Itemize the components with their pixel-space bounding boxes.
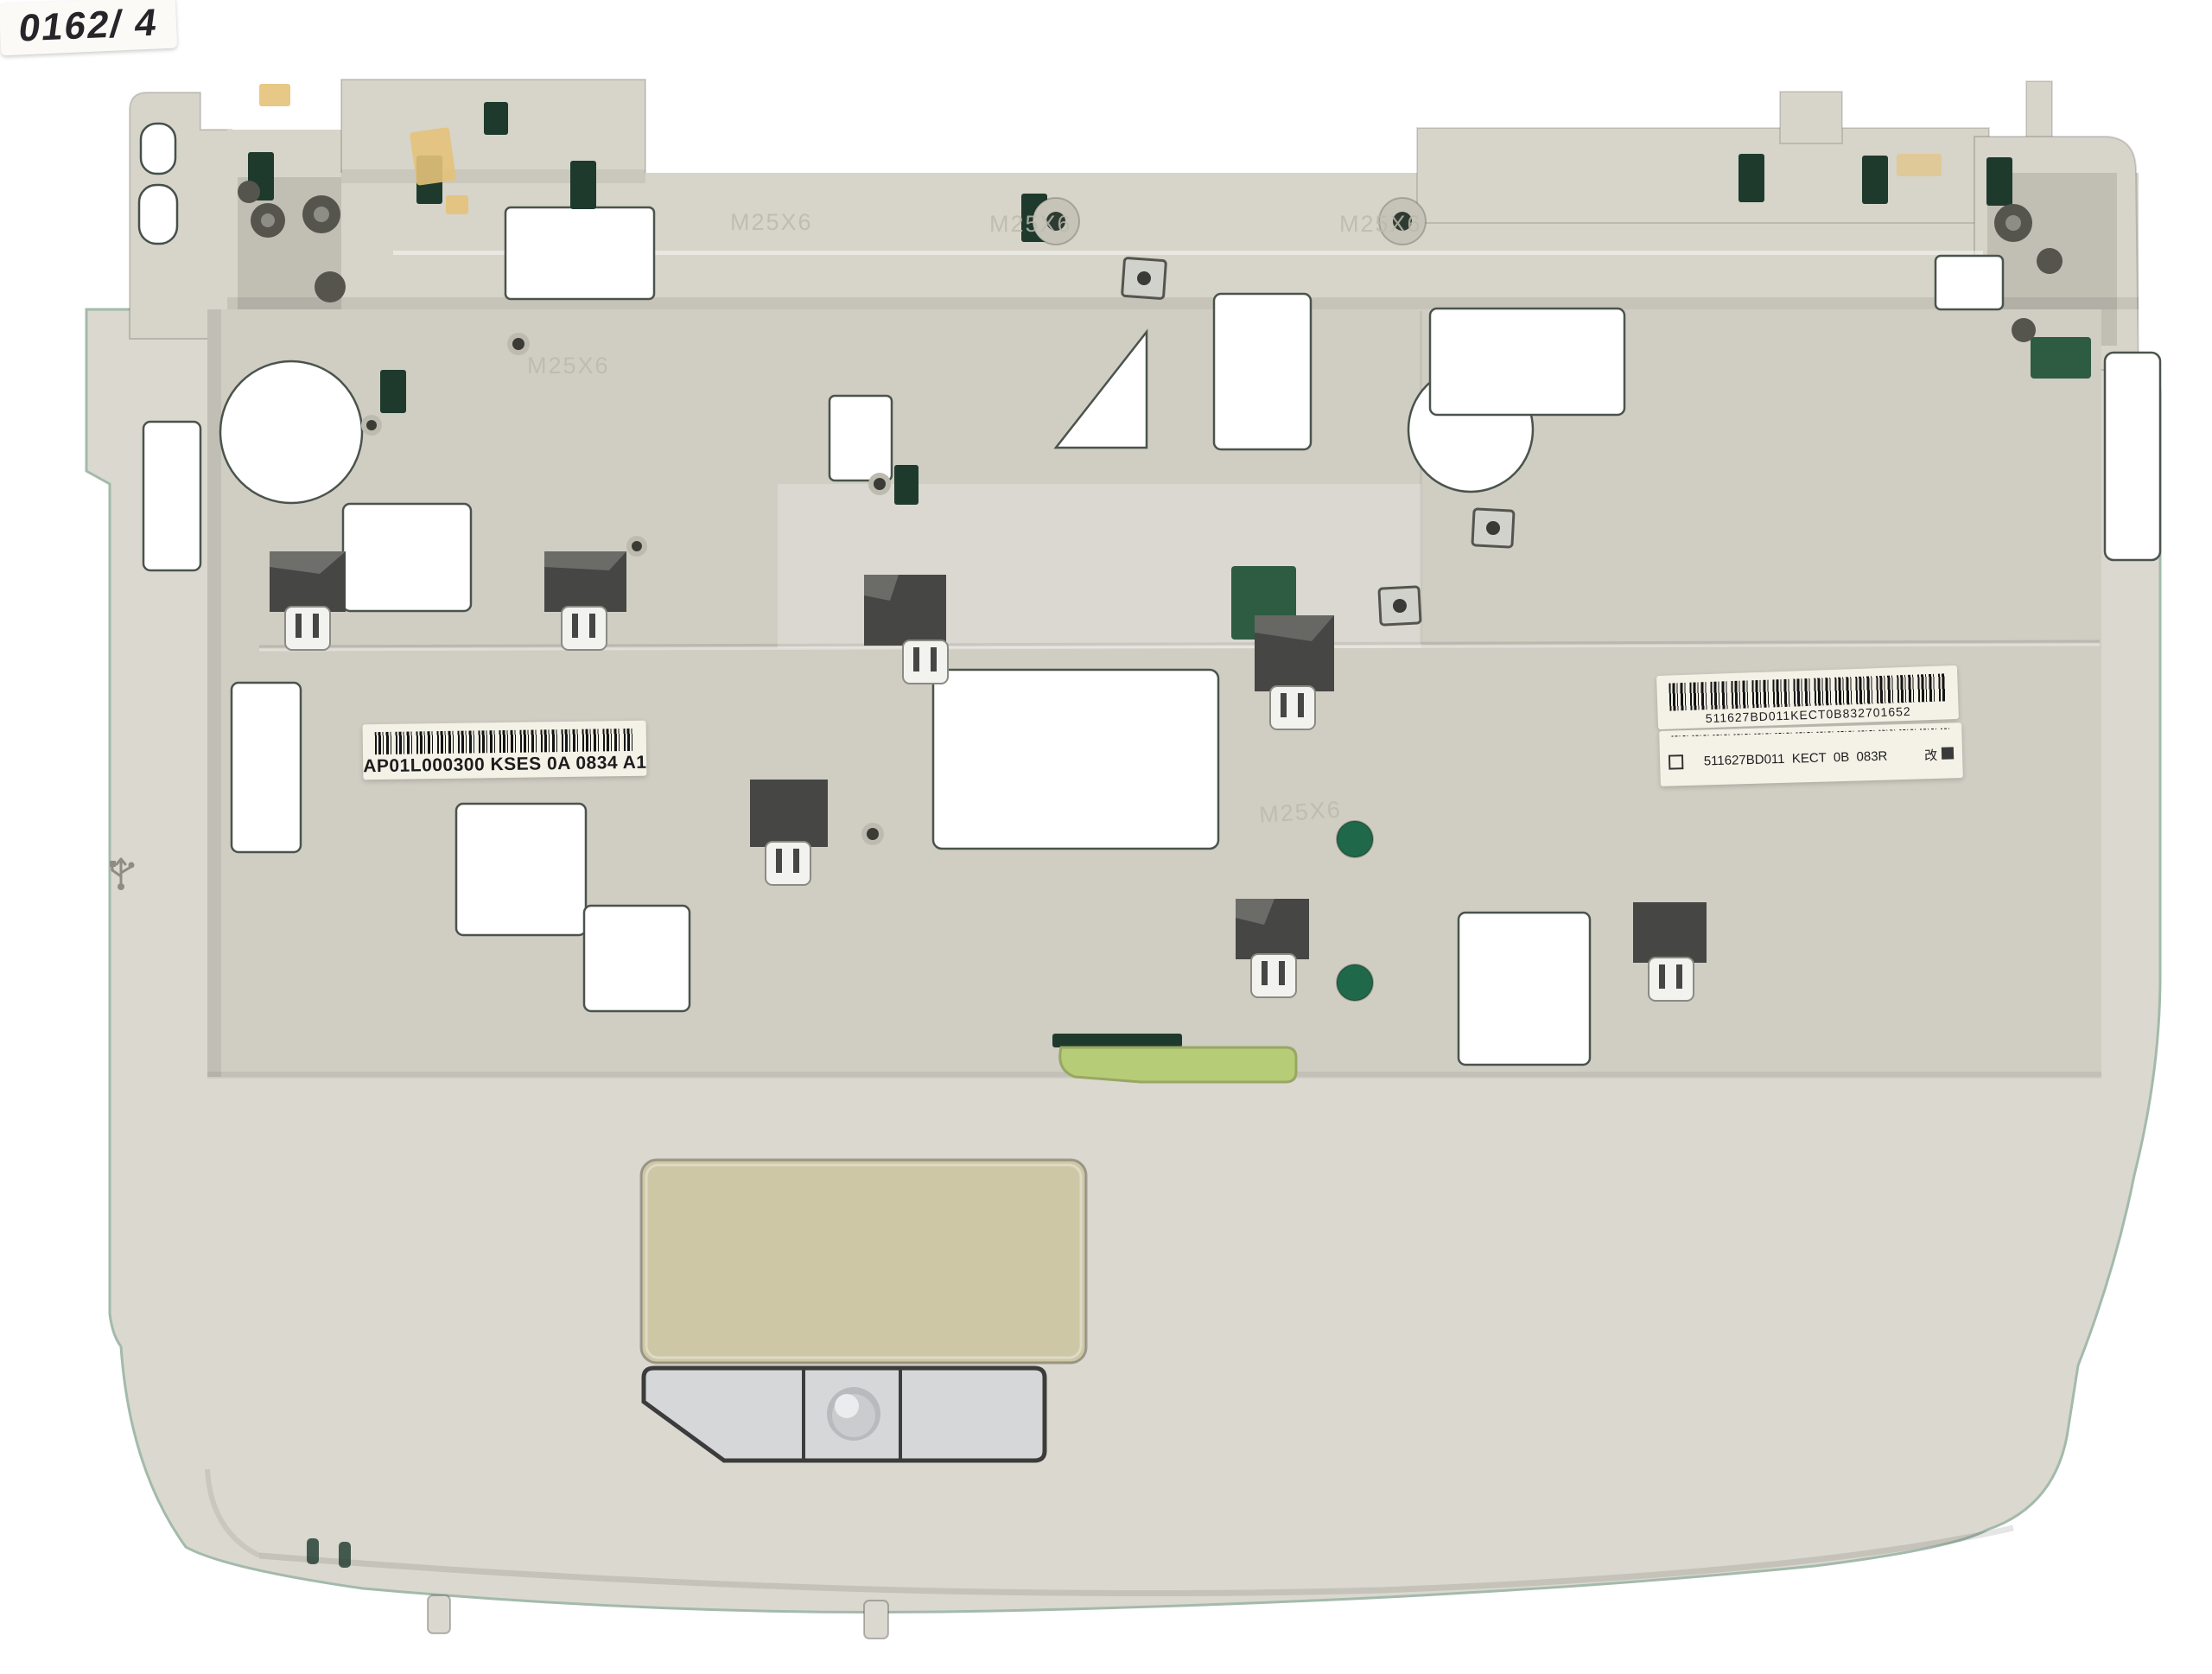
embossed-mark: M25X6	[1339, 211, 1422, 237]
barcode-stripes	[375, 729, 634, 754]
barcode-label-right-top: 511627BD011KECT0B832701652	[1656, 665, 1959, 729]
laptop-palmrest-photo: M25X6 M25X6 M25X6 M25X6 M25X6	[0, 0, 2212, 1674]
barcode-text: AP01L000300 KSES 0A 0834 A1	[363, 753, 646, 778]
barcode-text: 511627BD011 KECT 0B 083R	[1704, 749, 1888, 769]
handwritten-text: 0162/ 4	[16, 1, 160, 50]
photo-canvas: M25X6 M25X6 M25X6 M25X6 M25X6 AP01L00030…	[0, 0, 2212, 1674]
hinge-hole	[141, 124, 175, 174]
barcode-label-right-bottom: 511627BD011 KECT 0B 083R 改	[1659, 722, 1963, 786]
green-dot	[1337, 964, 1373, 1001]
barcode-label-left: AP01L000300 KSES 0A 0834 A1	[363, 721, 647, 780]
filled-square-icon	[1942, 747, 1954, 759]
embossed-mark: M25X6	[989, 211, 1072, 237]
power-button-strip	[1060, 1047, 1296, 1082]
label-checkbox-icon	[1669, 754, 1683, 769]
handwritten-note-label: 0162/ 4	[0, 0, 177, 55]
touchpad-area	[641, 1160, 1086, 1461]
hinge-hole	[139, 185, 177, 244]
embossed-mark: M25X6	[730, 209, 813, 235]
touchpad	[641, 1160, 1086, 1363]
embossed-mark: M25X6	[527, 353, 610, 379]
scroll-dimple	[827, 1387, 880, 1441]
revision-stamp: 改	[1902, 730, 1955, 780]
green-dot	[1337, 821, 1373, 857]
